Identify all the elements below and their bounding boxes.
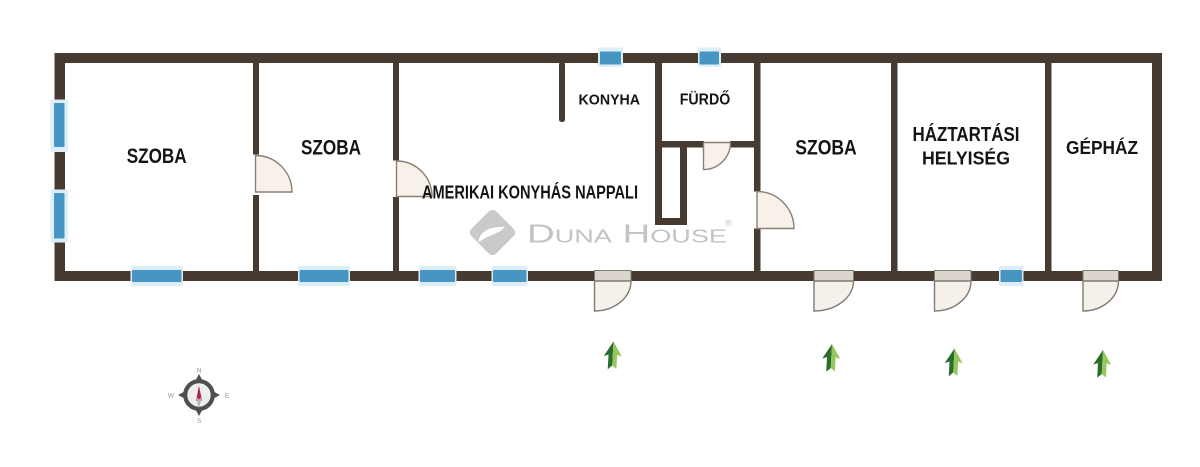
svg-text:W: W: [168, 392, 175, 399]
svg-text:Duna House: Duna House: [527, 221, 727, 249]
svg-text:SZOBA: SZOBA: [301, 135, 361, 159]
svg-text:E: E: [225, 392, 230, 399]
svg-text:S: S: [197, 418, 202, 425]
svg-text:HELYISÉG: HELYISÉG: [922, 148, 1010, 169]
svg-text:GÉPHÁZ: GÉPHÁZ: [1066, 137, 1138, 158]
svg-text:KONYHA: KONYHA: [579, 92, 641, 109]
svg-text:AMERIKAI KONYHÁS NAPPALI: AMERIKAI KONYHÁS NAPPALI: [422, 182, 638, 203]
svg-text:SZOBA: SZOBA: [127, 144, 187, 168]
svg-text:SZOBA: SZOBA: [795, 135, 857, 159]
svg-text:®: ®: [725, 218, 732, 229]
svg-text:N: N: [197, 368, 202, 375]
svg-text:FÜRDŐ: FÜRDŐ: [680, 91, 731, 109]
svg-text:HÁZTARTÁSI: HÁZTARTÁSI: [913, 123, 1020, 146]
